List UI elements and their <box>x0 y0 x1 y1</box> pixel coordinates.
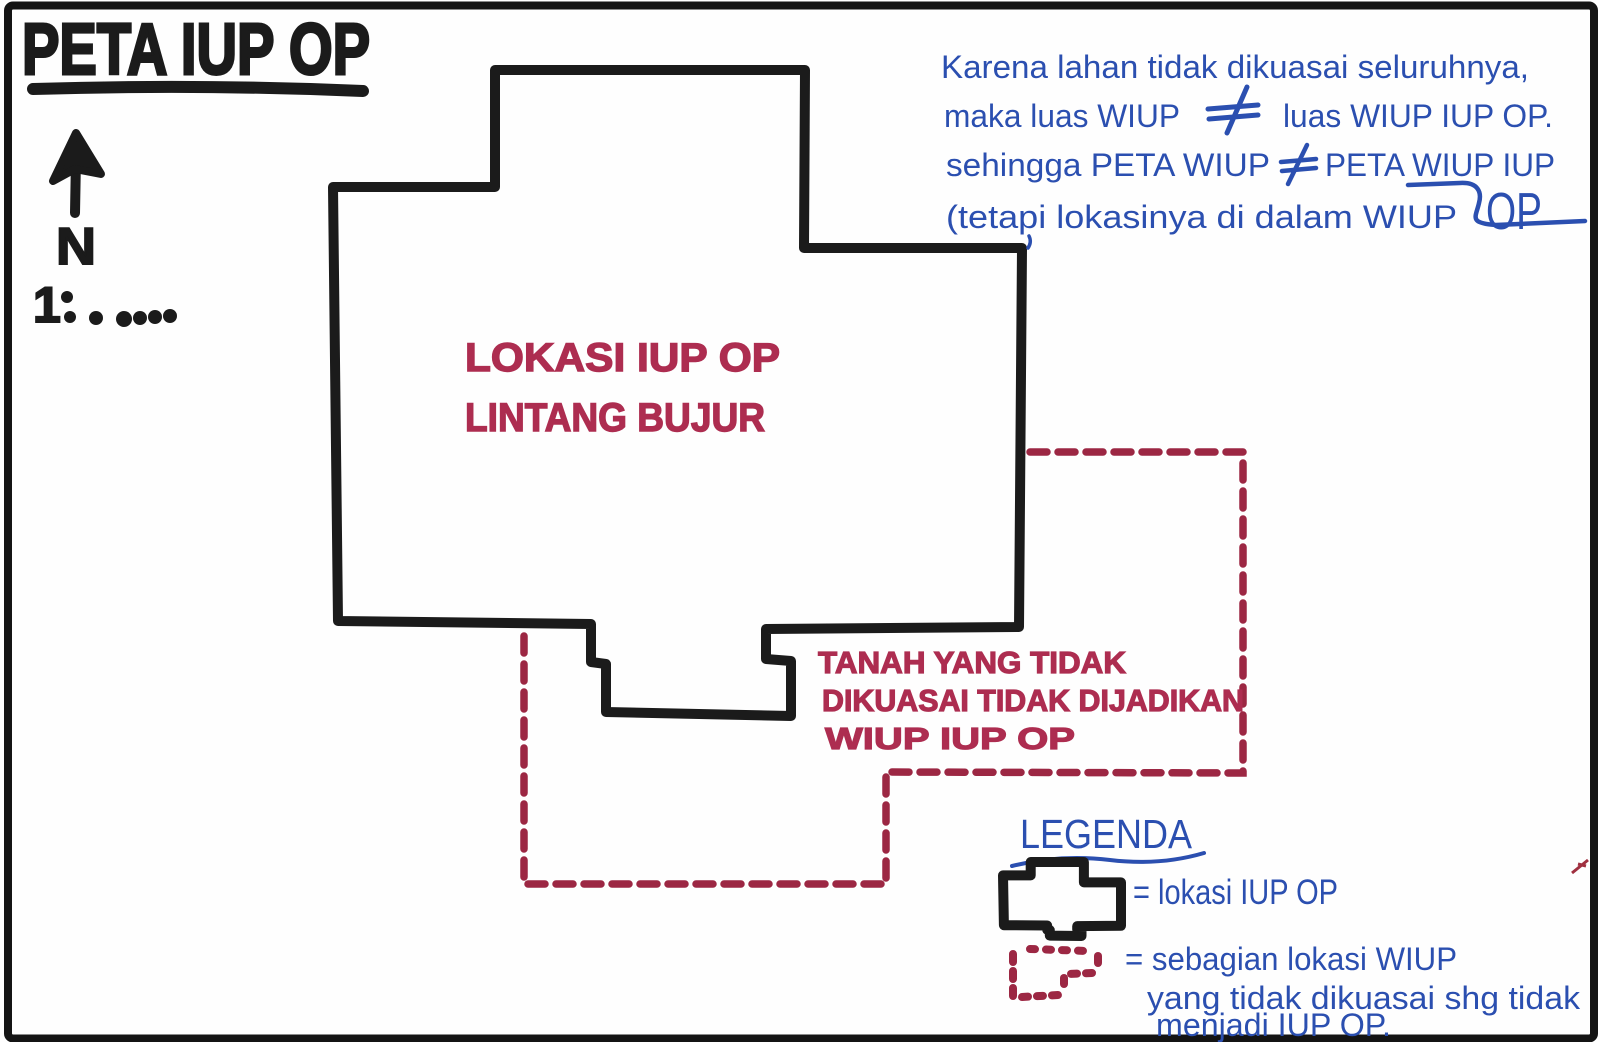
svg-text:OP: OP <box>1486 183 1542 241</box>
svg-text:PETA WIUP IUP: PETA WIUP IUP <box>1325 147 1555 183</box>
svg-text:(tetapi lokasinya di dalam WIU: (tetapi lokasinya di dalam WIUP <box>946 199 1457 235</box>
svg-text:PETA IUP OP: PETA IUP OP <box>22 10 370 90</box>
svg-text:1: 1 <box>33 277 61 333</box>
svg-text:LOKASI IUP OP: LOKASI IUP OP <box>465 336 780 380</box>
svg-text:maka luas WIUP: maka luas WIUP <box>944 98 1180 134</box>
svg-text:= lokasi IUP OP: = lokasi IUP OP <box>1133 873 1338 912</box>
svg-text:Karena lahan tidak dikuasai se: Karena lahan tidak dikuasai seluruhnya, <box>941 49 1529 85</box>
svg-text:TANAH YANG TIDAK: TANAH YANG TIDAK <box>818 645 1127 680</box>
svg-text:DIKUASAI TIDAK DIJADIKAN: DIKUASAI TIDAK DIJADIKAN <box>822 683 1244 718</box>
svg-text:LEGENDA: LEGENDA <box>1020 811 1193 857</box>
svg-text:sehingga PETA WIUP: sehingga PETA WIUP <box>946 147 1270 183</box>
svg-text:N: N <box>56 218 96 276</box>
svg-text:WIUP IUP OP: WIUP IUP OP <box>825 721 1075 756</box>
svg-text:LINTANG BUJUR: LINTANG BUJUR <box>465 396 765 440</box>
svg-text:luas WIUP IUP OP.: luas WIUP IUP OP. <box>1283 98 1553 134</box>
svg-text:menjadi IUP OP.: menjadi IUP OP. <box>1156 1007 1391 1042</box>
svg-text:= sebagian lokasi WIUP: = sebagian lokasi WIUP <box>1125 941 1457 977</box>
